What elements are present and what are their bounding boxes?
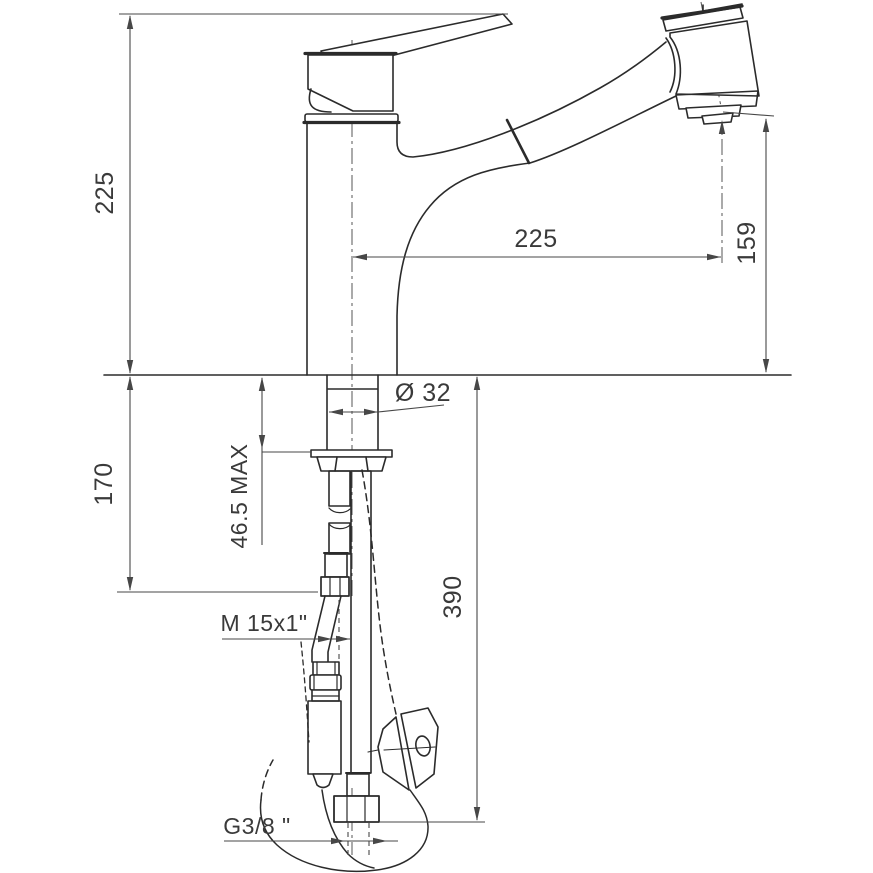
- spray-head-body: [670, 21, 759, 96]
- hose-drop-label: 390: [439, 575, 467, 618]
- spout-reach-label: 225: [514, 225, 557, 253]
- threaded-tail-tip: [313, 774, 333, 788]
- pullout-hose-hidden-descent: [362, 470, 396, 714]
- outlet-height-label: 159: [733, 221, 761, 264]
- left-hose-ferrule: [325, 554, 347, 577]
- connection-thread-label: G3/8 ": [223, 813, 290, 839]
- spray-head-group: [662, 4, 759, 124]
- right-hose-braid: [351, 471, 371, 773]
- technical-drawing-canvas: 225 225 159 Ø 32 46.5 MAX 170 390 M 15x1…: [0, 0, 873, 873]
- cartridge-body: [308, 55, 393, 111]
- dim-spout-reach: [353, 254, 721, 260]
- height-above-deck-label: 225: [91, 171, 119, 214]
- dim-clearance-below-deck: [117, 376, 318, 592]
- pullout-hose-loop-hidden: [261, 760, 273, 800]
- supply-thread-label: M 15x1": [220, 610, 307, 636]
- mounting-nut: [317, 457, 386, 471]
- spout-joint-ring: [507, 120, 529, 163]
- right-hose-ferrule: [347, 774, 369, 796]
- mounting-depth-label: 46.5 MAX: [226, 444, 252, 549]
- shank-diameter-label: Ø 32: [395, 379, 451, 407]
- m15-hex-nut: [321, 577, 349, 596]
- faucet-body-group: [304, 14, 676, 375]
- dim-mounting-depth: [259, 377, 311, 545]
- bent-tube: [312, 596, 341, 662]
- faucet-diagram: 225 225 159 Ø 32 46.5 MAX 170 390 M 15x1…: [0, 0, 873, 873]
- mounting-flange-plate: [311, 450, 392, 457]
- threaded-tail: [308, 701, 341, 774]
- base-ring: [305, 114, 398, 122]
- clearance-below-deck-label: 170: [90, 462, 118, 505]
- spout-end-arc: [666, 38, 675, 92]
- check-valve-body: [310, 675, 341, 690]
- g38-hex-nut: [334, 796, 379, 822]
- hose-path-hidden-left: [301, 642, 309, 742]
- spout-top-line: [397, 42, 666, 157]
- left-hose-break-symbol: [329, 508, 350, 529]
- dimensions: [117, 14, 774, 856]
- left-hose-braid-upper: [329, 471, 350, 506]
